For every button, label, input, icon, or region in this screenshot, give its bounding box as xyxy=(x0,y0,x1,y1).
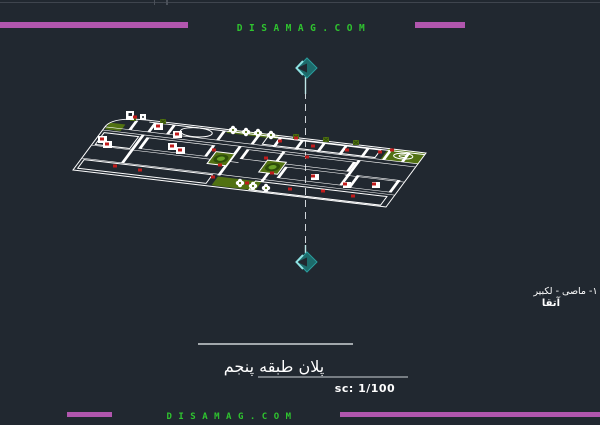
scale-label: sc: 1/100 xyxy=(335,382,395,395)
header-accent-bar-left xyxy=(0,22,188,28)
header-accent-bar-right xyxy=(415,22,465,28)
cad-viewport: DISAMAG.COM xyxy=(0,0,600,425)
drawing-title: پلان طبقه پنجم xyxy=(224,357,324,377)
footer-site-text: DISAMAG.COM xyxy=(166,412,297,422)
header-site-text: DISAMAG.COM xyxy=(237,23,371,34)
side-annotation-line1: ١- ماصى - لكبير - xyxy=(532,286,600,297)
footer-accent-bar-left xyxy=(67,412,112,417)
side-annotation-line2: آتقا xyxy=(542,296,561,309)
cad-canvas: DISAMAG.COM xyxy=(0,0,600,425)
footer-accent-bar-right xyxy=(340,412,600,417)
